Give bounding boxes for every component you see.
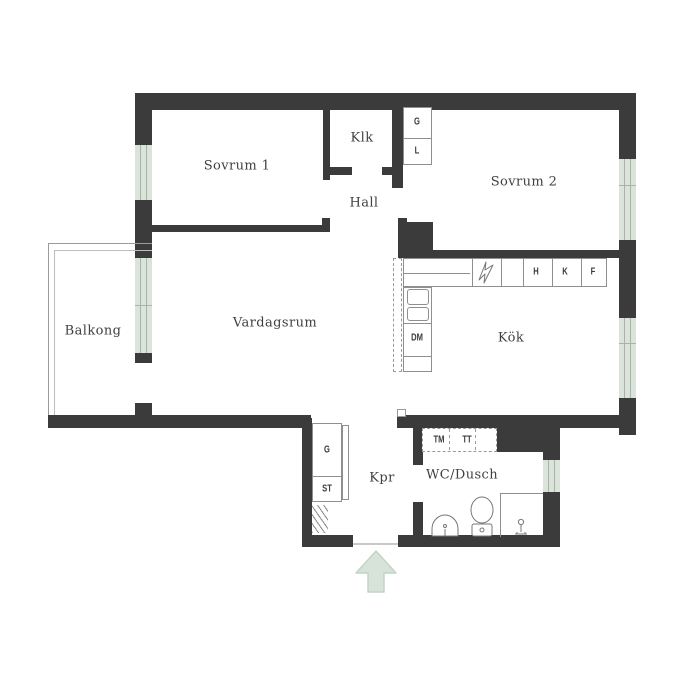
label-wardrobe-g-lower: G [324,445,330,456]
wall-sovrum1-bottom [150,225,330,232]
wall-wc-step [497,428,560,452]
wall-klk-door-stub-right [382,167,392,175]
wall-klk-right [392,105,403,188]
sink-icon [429,510,461,537]
floor-plan: Sovrum 1 Klk Hall Sovrum 2 Balkong Varda… [0,0,683,683]
wall-sovrum1-tick [322,218,330,232]
wall-bottom-right [397,415,635,428]
room-label-hall: Hall [349,196,378,211]
vent-marker [397,409,406,417]
room-label-sovrum2: Sovrum 2 [491,175,558,190]
label-fridge-k: K [562,267,567,278]
wall-entry-left [302,535,353,547]
wall-right-mid [619,240,636,318]
room-label-kpr: Kpr [369,471,394,486]
label-dishwasher-dm: DM [411,333,423,344]
wall-top [135,93,636,110]
room-label-klk: Klk [351,131,374,146]
wall-klk-left [323,105,330,180]
stove-icon [472,259,499,286]
wall-sovrum2-kok [433,250,619,258]
room-label-sovrum1: Sovrum 1 [204,159,271,174]
window-kok [619,318,636,398]
entrance-threshold [353,543,398,545]
label-shelf-h: H [533,267,538,278]
label-freezer-f: F [591,267,596,278]
entrance-arrow-icon [356,551,396,592]
cabinet-g-st-front [342,425,349,500]
label-wardrobe-g: G [414,117,420,128]
kitchen-counter [403,258,607,287]
shower-icon [512,517,530,537]
room-label-kok: Kök [498,331,524,346]
wall-wc-left-lower [413,502,423,537]
window-sovrum2 [619,159,636,240]
wall-right-upper [619,93,636,159]
label-linen-l: L [415,146,420,157]
window-wc [543,460,560,492]
room-label-vardagsrum: Vardagsrum [233,316,317,331]
label-dryer-tt: TT [462,435,471,446]
toilet-icon [468,497,496,538]
wall-wc-right-lower [543,492,560,547]
room-label-wc-dusch: WC/Dusch [426,468,498,483]
shaft-hatch [312,505,328,533]
window-sovrum1 [135,145,152,200]
kitchen-sink-basin-2 [407,307,429,321]
label-washing-machine-tm: TM [434,435,445,446]
wall-kitchen-block [398,222,433,258]
wall-kpr-left [302,418,312,547]
wall-klk-door-stub-left [330,167,352,175]
kitchen-sink-basin-1 [407,289,429,305]
room-label-balkong: Balkong [65,324,122,339]
wall-bottom-left [48,415,311,428]
wall-left-upper [135,93,152,145]
label-cleaning-st: ST [322,484,332,495]
kitchen-upper-cabinet-dashed [393,258,402,372]
